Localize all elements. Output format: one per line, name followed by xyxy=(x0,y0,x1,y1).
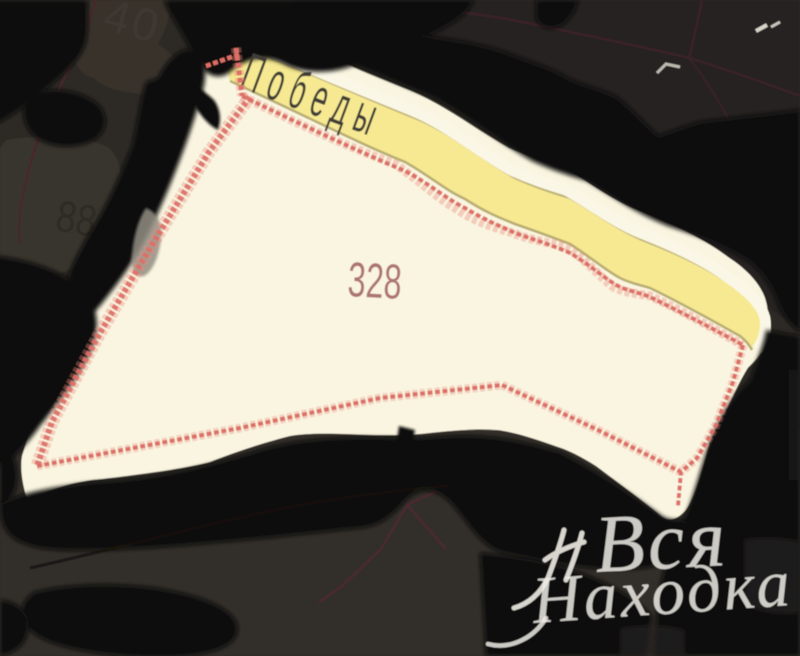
svg-text:328: 328 xyxy=(346,251,403,309)
